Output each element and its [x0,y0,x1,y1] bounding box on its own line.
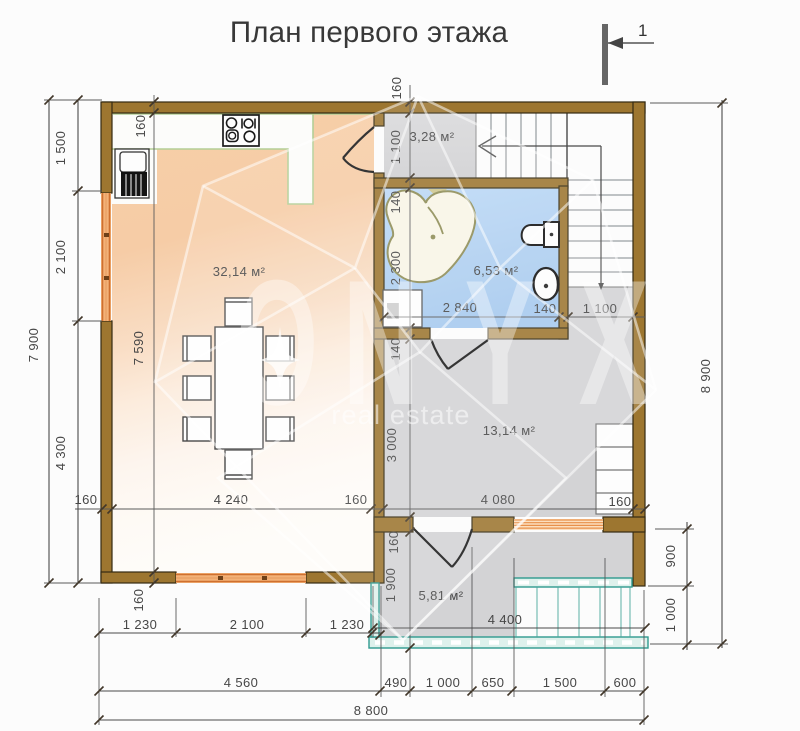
svg-text:1 230: 1 230 [123,617,158,632]
svg-text:8 800: 8 800 [354,703,389,718]
svg-text:4 400: 4 400 [488,612,523,627]
svg-text:160: 160 [75,492,98,507]
svg-text:160: 160 [131,589,146,612]
svg-text:1 230: 1 230 [330,617,365,632]
svg-text:7 900: 7 900 [26,328,41,363]
svg-text:Y: Y [465,244,536,443]
svg-text:490: 490 [385,675,408,690]
svg-text:1: 1 [638,21,647,40]
svg-text:O: O [236,244,318,443]
svg-text:2 100: 2 100 [53,240,68,275]
svg-text:160: 160 [133,115,148,138]
svg-text:4 560: 4 560 [224,675,259,690]
svg-text:160: 160 [609,494,632,509]
svg-text:1 000: 1 000 [663,598,678,633]
svg-text:1 000: 1 000 [426,675,461,690]
svg-text:2 100: 2 100 [230,617,265,632]
svg-text:900: 900 [663,545,678,568]
svg-text:4 300: 4 300 [53,436,68,471]
svg-text:7 590: 7 590 [131,331,146,366]
svg-text:План первого этажа: План первого этажа [230,16,509,49]
svg-text:real estate: real estate [331,400,470,430]
svg-text:1 500: 1 500 [543,675,578,690]
svg-text:650: 650 [482,675,505,690]
svg-text:600: 600 [614,675,637,690]
svg-text:8 900: 8 900 [698,359,713,394]
svg-text:160: 160 [389,77,404,100]
svg-text:X: X [579,244,650,443]
svg-text:1 500: 1 500 [53,131,68,166]
